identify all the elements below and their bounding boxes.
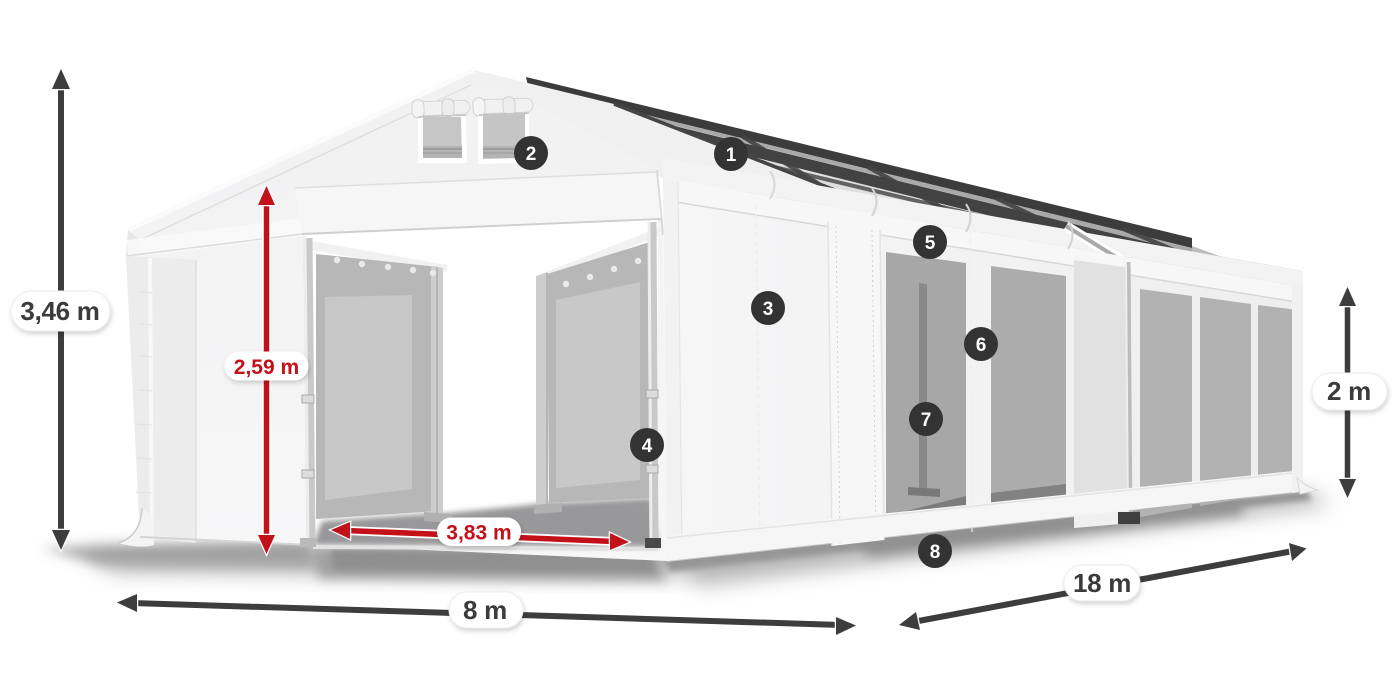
svg-text:4: 4 [642, 436, 653, 457]
svg-text:5: 5 [925, 233, 936, 254]
svg-text:8: 8 [930, 542, 941, 563]
svg-text:1: 1 [726, 145, 737, 166]
svg-text:2 m: 2 m [1327, 376, 1371, 406]
svg-text:2,59 m: 2,59 m [234, 356, 299, 379]
svg-text:3,46 m: 3,46 m [20, 296, 99, 326]
svg-text:6: 6 [976, 335, 987, 356]
svg-text:18 m: 18 m [1073, 568, 1131, 598]
svg-text:3: 3 [763, 299, 774, 320]
svg-text:2: 2 [526, 144, 537, 165]
svg-text:3,83 m: 3,83 m [446, 522, 511, 545]
svg-text:8 m: 8 m [463, 595, 507, 625]
svg-text:7: 7 [921, 410, 932, 431]
